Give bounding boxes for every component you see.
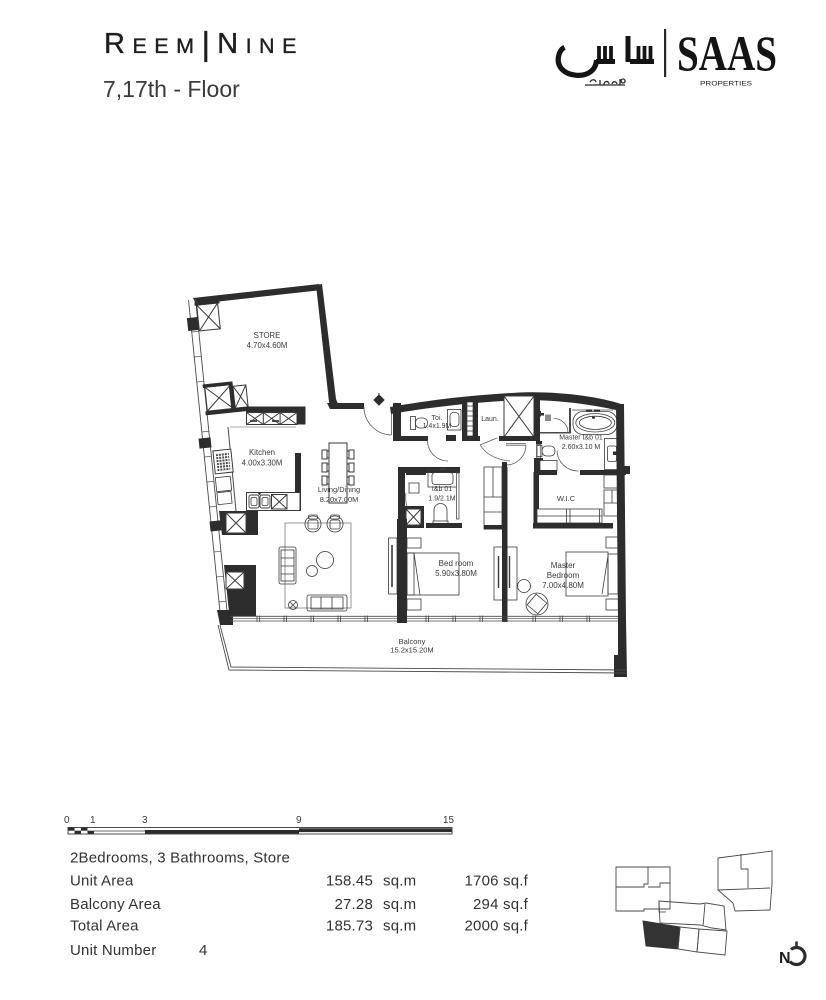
svg-text:SAAS: SAAS bbox=[677, 25, 777, 81]
svg-text:PROPERTIES: PROPERTIES bbox=[700, 81, 753, 88]
